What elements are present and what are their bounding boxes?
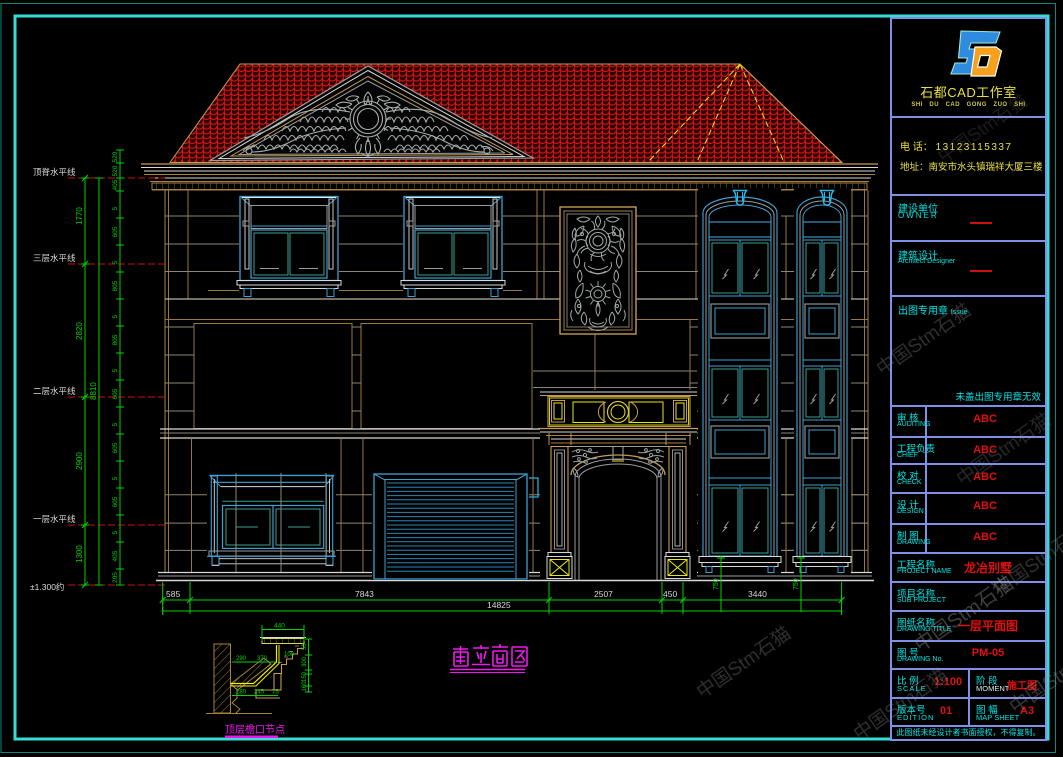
svg-text:2507: 2507 bbox=[594, 589, 613, 599]
svg-text:805: 805 bbox=[112, 280, 119, 291]
svg-text:5: 5 bbox=[112, 477, 119, 481]
svg-text:8810: 8810 bbox=[89, 382, 98, 400]
svg-text:750: 750 bbox=[793, 578, 800, 590]
svg-text:405: 405 bbox=[112, 550, 119, 561]
svg-text:605: 605 bbox=[112, 226, 119, 237]
svg-text:5: 5 bbox=[112, 531, 119, 535]
svg-text:370: 370 bbox=[257, 656, 268, 662]
svg-text:1770: 1770 bbox=[75, 207, 84, 225]
svg-text:5: 5 bbox=[112, 315, 119, 319]
svg-text:顶脊水平线: 顶脊水平线 bbox=[33, 167, 76, 177]
svg-text:三层水平线: 三层水平线 bbox=[33, 253, 76, 263]
svg-text:14825: 14825 bbox=[487, 600, 511, 610]
svg-text:75: 75 bbox=[272, 690, 279, 696]
svg-text:280: 280 bbox=[236, 690, 247, 696]
svg-text:5: 5 bbox=[112, 261, 119, 265]
svg-text:290: 290 bbox=[236, 656, 247, 662]
svg-text:1300: 1300 bbox=[75, 545, 84, 563]
svg-text:300: 300 bbox=[302, 656, 308, 667]
svg-text:2820: 2820 bbox=[75, 322, 84, 340]
svg-text:450: 450 bbox=[663, 589, 677, 599]
svg-text:7843: 7843 bbox=[355, 589, 374, 599]
svg-text:3440: 3440 bbox=[748, 589, 767, 599]
svg-text:605: 605 bbox=[112, 442, 119, 453]
svg-text:405: 405 bbox=[112, 179, 119, 190]
svg-text:440: 440 bbox=[274, 623, 285, 630]
svg-text:150: 150 bbox=[302, 671, 308, 682]
svg-text:750: 750 bbox=[713, 578, 720, 590]
svg-text:±1.300约: ±1.300约 bbox=[30, 582, 64, 592]
svg-text:2900: 2900 bbox=[75, 452, 84, 470]
svg-text:160: 160 bbox=[302, 681, 308, 692]
svg-text:50: 50 bbox=[302, 643, 308, 650]
svg-text:520: 520 bbox=[112, 165, 119, 176]
svg-text:一层水平线: 一层水平线 bbox=[33, 514, 76, 524]
svg-text:245: 245 bbox=[254, 690, 265, 696]
svg-text:5: 5 bbox=[112, 369, 119, 373]
svg-text:二层水平线: 二层水平线 bbox=[33, 386, 76, 396]
svg-text:605: 605 bbox=[112, 388, 119, 399]
svg-text:805: 805 bbox=[112, 334, 119, 345]
svg-text:5: 5 bbox=[112, 423, 119, 427]
svg-text:5: 5 bbox=[112, 207, 119, 211]
svg-text:205: 205 bbox=[112, 572, 119, 583]
svg-text:520: 520 bbox=[112, 151, 119, 162]
svg-text:100: 100 bbox=[284, 652, 295, 658]
svg-text:顶层檐口节点: 顶层檐口节点 bbox=[225, 723, 285, 736]
svg-text:585: 585 bbox=[166, 589, 180, 599]
svg-text:605: 605 bbox=[112, 496, 119, 507]
